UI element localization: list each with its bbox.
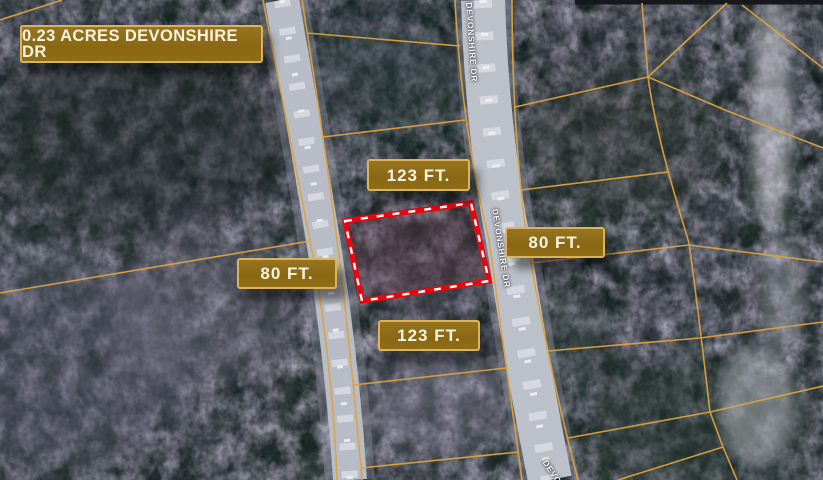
satellite-map-canvas <box>0 0 823 480</box>
dimension-badge-left: 80 FT. <box>237 258 337 289</box>
acreage-title-badge: 0.23 ACRES DEVONSHIRE DR <box>20 25 263 63</box>
dimension-badge-right: 80 FT. <box>505 227 605 258</box>
subject-parcel-outline <box>345 203 489 301</box>
dimension-badge-bottom: 123 FT. <box>378 320 480 351</box>
land-listing-map: DEVONSHIRE DR DEVONSHIRE DR DEVONSHIRE D… <box>0 0 823 480</box>
dimension-badge-top: 123 FT. <box>367 159 470 191</box>
imagery-seam <box>575 0 823 5</box>
